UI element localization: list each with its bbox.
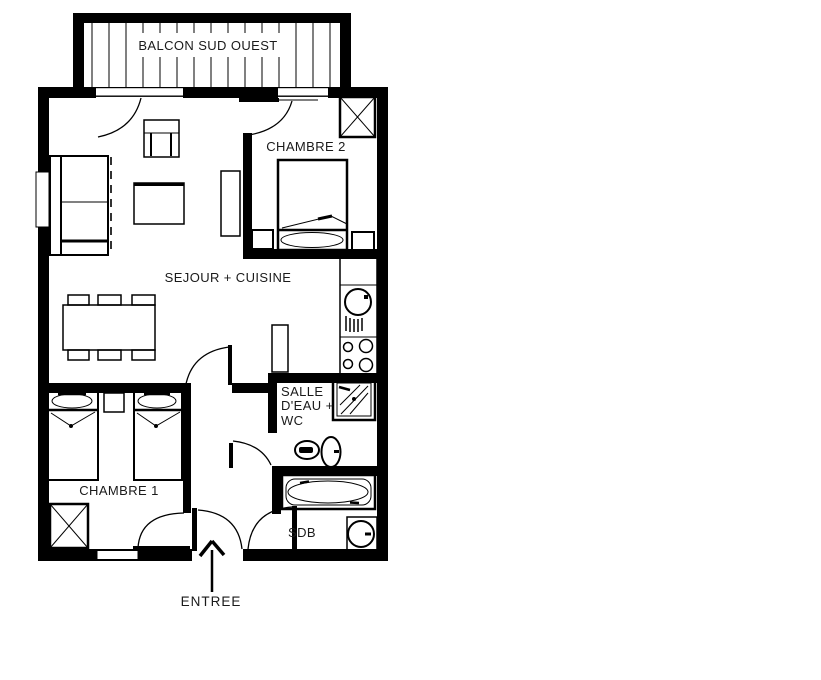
chair-icon xyxy=(132,295,155,305)
floor-plan-drawing: BALCON SUD OUEST xyxy=(0,0,821,680)
door-swing-icon-shower-room xyxy=(229,441,271,468)
chair-icon xyxy=(68,350,89,360)
floor-plan-page: BALCON SUD OUEST xyxy=(0,0,821,680)
nightstand-icon xyxy=(252,230,273,249)
chair-icon xyxy=(98,295,121,305)
wardrobe-icon-bedroom1 xyxy=(50,504,88,548)
door-swing-icon-living-balcony xyxy=(98,98,141,137)
tv-stand-icon xyxy=(221,171,240,236)
hob-icon xyxy=(344,340,373,372)
shower-room-label-line3: WC xyxy=(281,413,303,428)
entry-arrow-icon xyxy=(200,541,224,592)
sofa-icon xyxy=(50,156,111,255)
door-swing-icon-bedroom2 xyxy=(239,98,318,135)
door-swing-icon-bedroom1-top xyxy=(186,345,232,385)
armchair-icon xyxy=(144,120,179,157)
chair-icon xyxy=(98,350,121,360)
shower-room-label-line2: D'EAU + xyxy=(281,398,334,413)
entrance-label: ENTREE xyxy=(181,594,242,609)
toilet-icon xyxy=(295,441,319,459)
washbasin-icon-bathroom xyxy=(347,517,377,553)
nightstand-icon xyxy=(104,393,124,412)
kitchen-cabinet-icon xyxy=(272,325,288,372)
chair-icon xyxy=(68,295,89,305)
living-kitchen-label: SEJOUR + CUISINE xyxy=(165,270,292,285)
partition-walls xyxy=(38,133,388,514)
coffee-table-icon xyxy=(134,183,184,224)
shower-room-label-line1: SALLE xyxy=(281,384,323,399)
window-icon-left xyxy=(36,172,49,227)
bathroom-label: SDB xyxy=(288,525,316,540)
chair-icon xyxy=(132,350,155,360)
single-bed-icon-right xyxy=(134,392,182,480)
kitchen-sink-icon xyxy=(345,289,371,332)
balcony-label: BALCON SUD OUEST xyxy=(138,38,277,53)
single-bed-icon-left xyxy=(48,392,98,480)
double-bed-icon xyxy=(278,160,347,250)
bedroom2-label: CHAMBRE 2 xyxy=(266,139,345,154)
bathtub-icon xyxy=(282,475,375,509)
dining-table-icon xyxy=(63,295,155,360)
nightstand-icon xyxy=(352,232,374,251)
window-icon-bottom xyxy=(97,551,138,560)
washbasin-icon-shower-room xyxy=(322,437,341,467)
bedroom1-label: CHAMBRE 1 xyxy=(79,483,158,498)
wardrobe-icon-bedroom2 xyxy=(340,97,375,137)
door-swing-icon-bedroom1-bottom xyxy=(133,513,190,550)
shower-icon xyxy=(333,379,375,420)
